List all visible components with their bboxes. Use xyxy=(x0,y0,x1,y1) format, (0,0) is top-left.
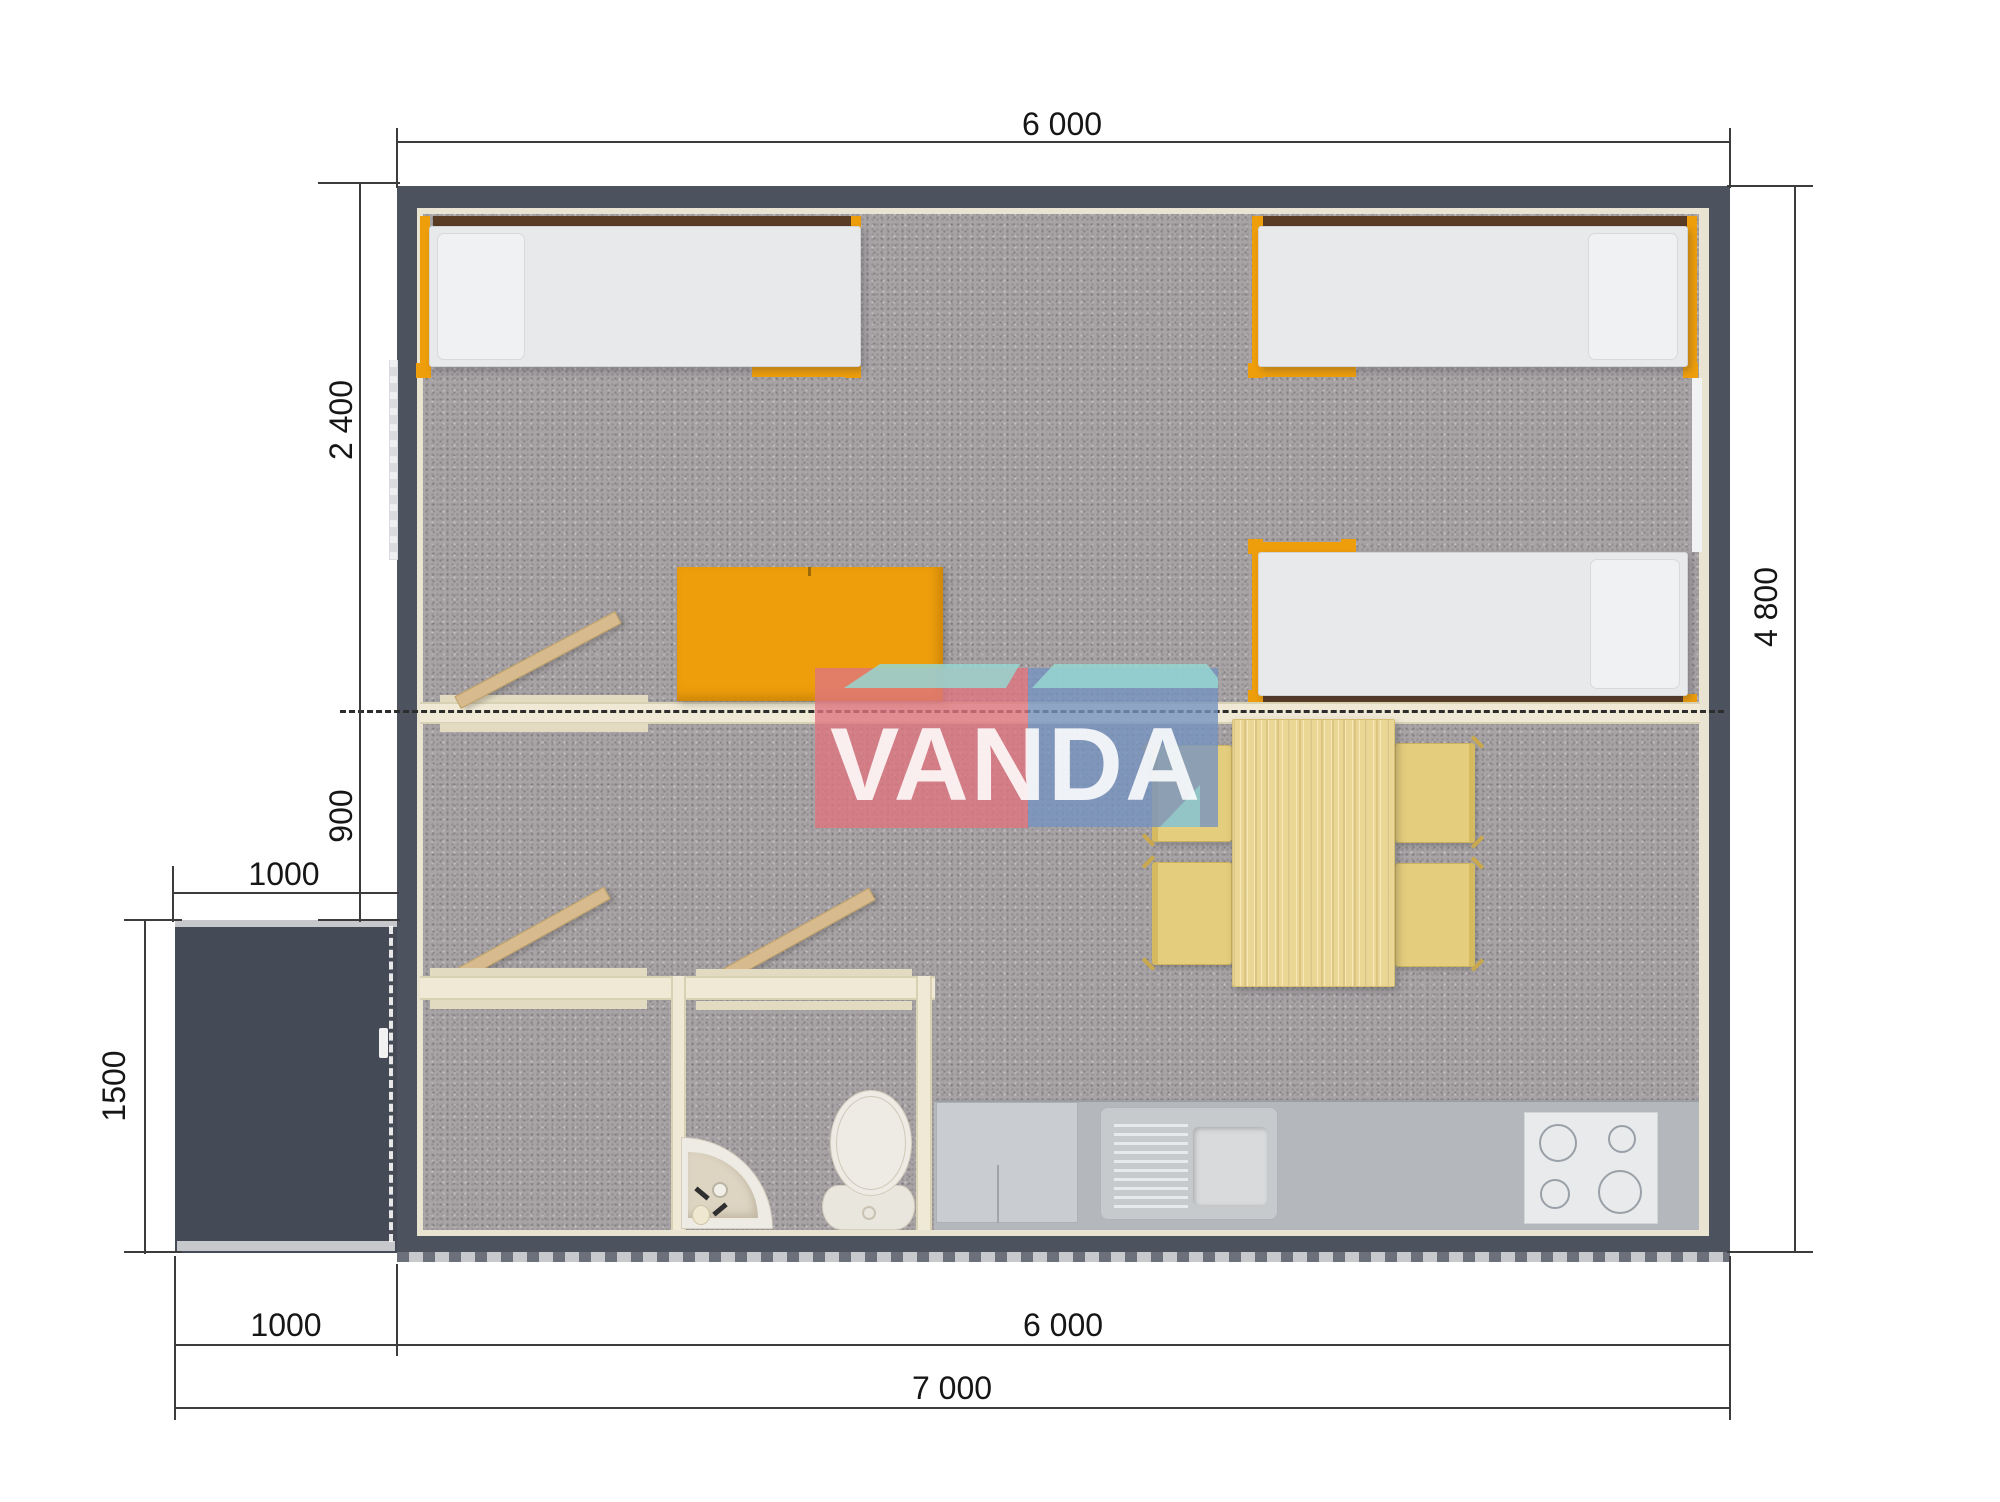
entry-door-dashed-line xyxy=(389,926,393,1242)
sink-faucet xyxy=(712,1182,728,1198)
stove-burner xyxy=(1540,1179,1570,1209)
logo-teal-edge xyxy=(1032,664,1218,688)
dimension-tick xyxy=(124,919,182,921)
dim-bottom-porch-width: 1000 xyxy=(226,1307,346,1343)
dim-hall-depth: 900 xyxy=(323,766,359,866)
dimension-tick xyxy=(318,919,400,921)
kitchen-cabinet xyxy=(936,1102,1078,1223)
dimension-tick xyxy=(1727,185,1813,187)
bed2-rail-right xyxy=(1687,216,1697,378)
right-wall-window xyxy=(1692,378,1702,552)
dimension-line xyxy=(175,1407,1731,1409)
dining-chair xyxy=(1395,743,1475,843)
bottom-wall-siding xyxy=(397,1252,1730,1262)
bed2-pillow xyxy=(1588,233,1678,360)
dimension-extension xyxy=(1729,128,1731,188)
dimension-extension xyxy=(172,866,174,922)
toilet-lid-inner-line xyxy=(836,1096,906,1190)
porch-bottom-edge xyxy=(177,1241,395,1251)
kitchen-cabinet-seam xyxy=(997,1165,999,1223)
dimension-line xyxy=(175,1344,1731,1346)
dimension-extension xyxy=(174,1256,176,1420)
logo-text: VANDA xyxy=(830,700,1180,830)
dim-bedroom-depth: 2 400 xyxy=(323,350,359,490)
kitchen-sink-basin xyxy=(1192,1126,1268,1206)
kitchen-drainboard xyxy=(1114,1124,1188,1208)
left-wall-siding-dashes xyxy=(390,216,397,920)
dining-table xyxy=(1232,719,1395,987)
stove-burner xyxy=(1608,1125,1636,1153)
partition-bench-board-bottom xyxy=(440,723,648,732)
dimension-line xyxy=(359,182,361,922)
dim-bottom-main-width: 6 000 xyxy=(993,1307,1133,1343)
bath-wall-board xyxy=(696,1001,912,1010)
bed2-frame-bar xyxy=(1252,367,1351,377)
toilet-flush-button xyxy=(862,1206,876,1220)
dimension-extension xyxy=(396,128,398,188)
dining-chair xyxy=(1152,862,1232,965)
dim-porch-depth: 1500 xyxy=(96,1016,132,1156)
dim-bottom-total-width: 7 000 xyxy=(882,1370,1022,1406)
stove-burner xyxy=(1598,1170,1642,1214)
bed3-pillow xyxy=(1590,559,1680,689)
sink-soap-bottle xyxy=(692,1205,710,1225)
bed3-frame-bar xyxy=(1252,542,1351,552)
dining-chair xyxy=(1395,863,1475,967)
dim-total-depth: 4 800 xyxy=(1748,537,1784,677)
bathroom-right-wall xyxy=(916,976,932,1230)
bath-wall-board xyxy=(430,1000,647,1009)
dimension-extension xyxy=(396,1264,398,1356)
stove-burner xyxy=(1539,1124,1577,1162)
dim-top-width: 6 000 xyxy=(992,106,1132,142)
dimension-tick xyxy=(318,182,400,184)
dimension-line xyxy=(1794,186,1796,1253)
dimension-line xyxy=(173,892,399,894)
dimension-tick xyxy=(124,1251,182,1253)
dim-porch-width-top: 1000 xyxy=(224,856,344,892)
wardrobe-notch xyxy=(808,567,811,576)
dimension-extension xyxy=(1729,1256,1731,1420)
porch-top-edge xyxy=(175,920,397,927)
bed1-pillow xyxy=(437,233,525,360)
dimension-line xyxy=(144,920,146,1254)
floor-plan-canvas: VANDA 6 000 2 400 900 1000 1500 4 800 10… xyxy=(0,0,2000,1502)
dimension-tick xyxy=(1727,1251,1813,1253)
porch xyxy=(175,920,397,1253)
entry-door-handle xyxy=(379,1028,388,1058)
